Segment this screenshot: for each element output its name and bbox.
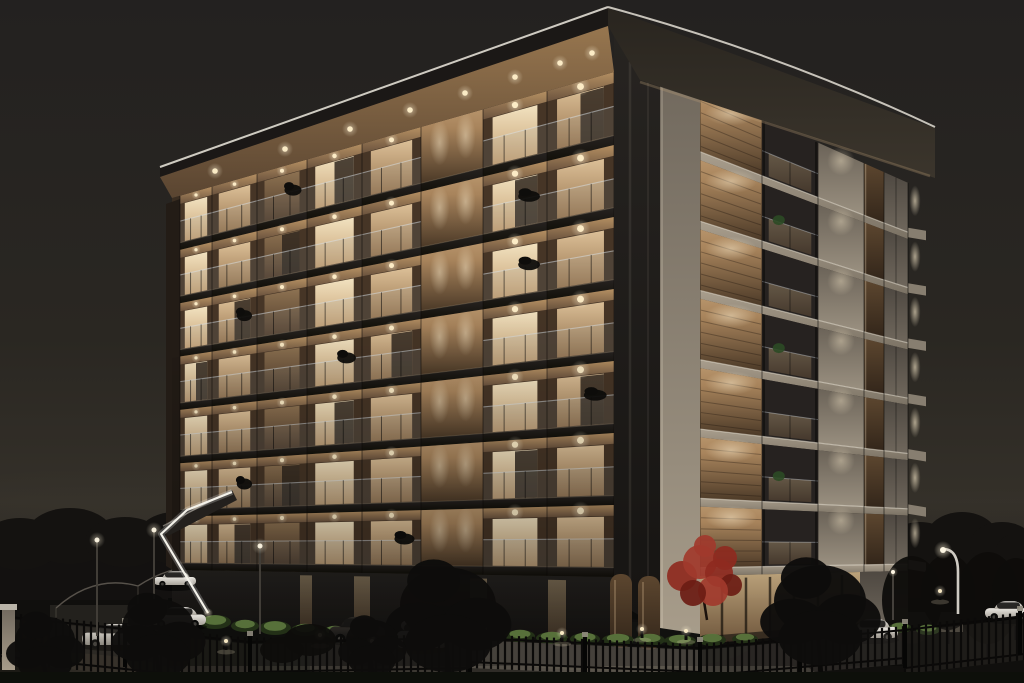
corner-tower [614,34,700,634]
building-night-scene: Night exterior rendering of a modern sev… [0,0,1024,683]
lamp-light [940,547,946,553]
foreground-lawn [0,672,1024,683]
corner-glass-strip [614,34,660,628]
architectural-night-render: Night exterior rendering of a modern sev… [0,0,1024,683]
